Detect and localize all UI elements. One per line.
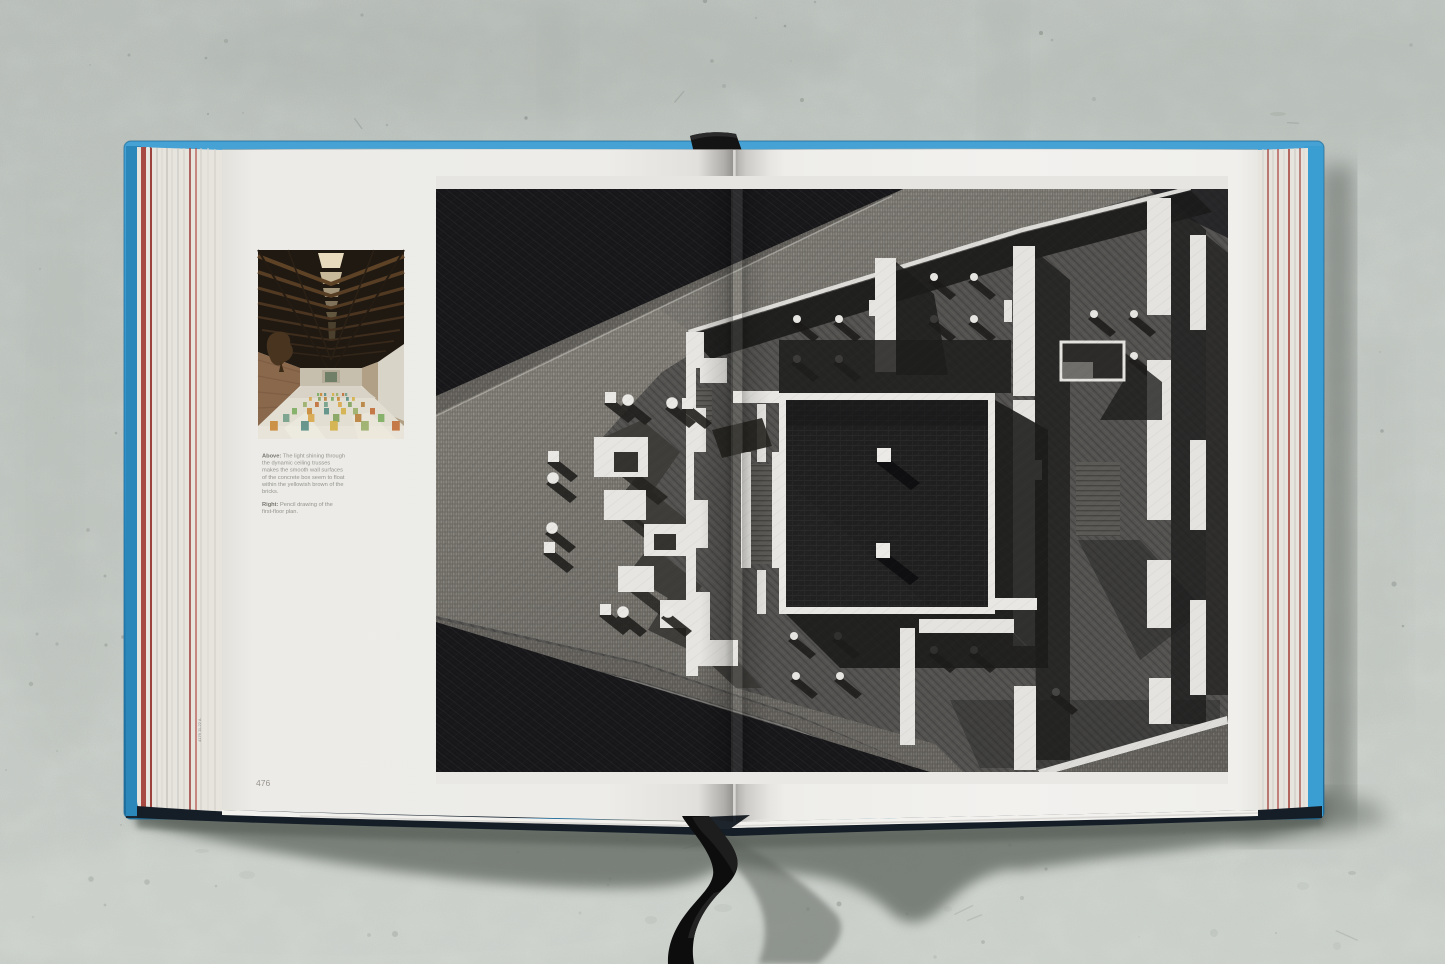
svg-text:first-floor plan.: first-floor plan. <box>262 509 298 515</box>
svg-text:of the concrete box seem to fl: of the concrete box seem to float <box>262 475 345 481</box>
svg-text:bricks.: bricks. <box>262 489 279 495</box>
svg-text:Above: The light shining throu: Above: The light shining through <box>262 454 345 460</box>
svg-text:within the yellowish brown of: within the yellowish brown of the <box>261 482 344 488</box>
svg-text:4176 11-22 A: 4176 11-22 A <box>197 718 202 742</box>
svg-text:makes the smooth wall surfaces: makes the smooth wall surfaces <box>262 468 343 474</box>
svg-text:Right: Pencil drawing of the: Right: Pencil drawing of the <box>262 502 333 508</box>
svg-text:the dynamic ceiling trusses: the dynamic ceiling trusses <box>262 461 330 467</box>
svg-text:476: 476 <box>256 778 270 788</box>
